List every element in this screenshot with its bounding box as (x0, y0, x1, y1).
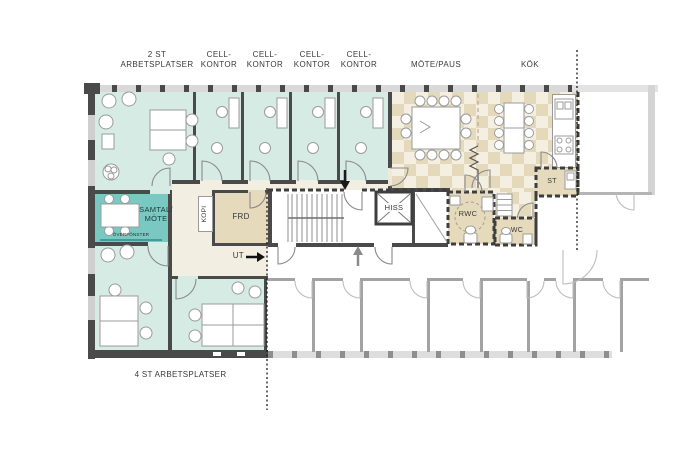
label-rwc: RWC (448, 209, 488, 219)
shaft (416, 194, 447, 242)
label-frd: FRD (221, 212, 261, 222)
label-st: ST (537, 177, 567, 187)
other-doors (295, 192, 634, 298)
up-arrow-icon (353, 246, 363, 266)
staircase (288, 194, 344, 242)
label-overfonster: ÖVERFÖNSTER (100, 232, 162, 237)
label-samtal-mote: SAMTAL/MÖTE (126, 205, 186, 223)
folding-partition (470, 94, 478, 188)
plant (103, 164, 119, 180)
entry-arrow-icon (340, 170, 350, 190)
exit-arrow-icon (246, 252, 265, 262)
label-4st-arbetsplatser: 4 ST ARBETSPLATSER (108, 370, 253, 380)
overfonster-line (100, 239, 162, 241)
label-kopi: KOPI (200, 194, 212, 234)
floor-plan: 2 STARBETSPLATSER CELL-KONTOR CELL-KONTO… (0, 0, 700, 460)
label-wc: WC (501, 226, 533, 236)
label-ut: UT (220, 251, 244, 261)
label-hiss: HISS (374, 203, 414, 213)
label-kok: KÖK (475, 60, 585, 70)
